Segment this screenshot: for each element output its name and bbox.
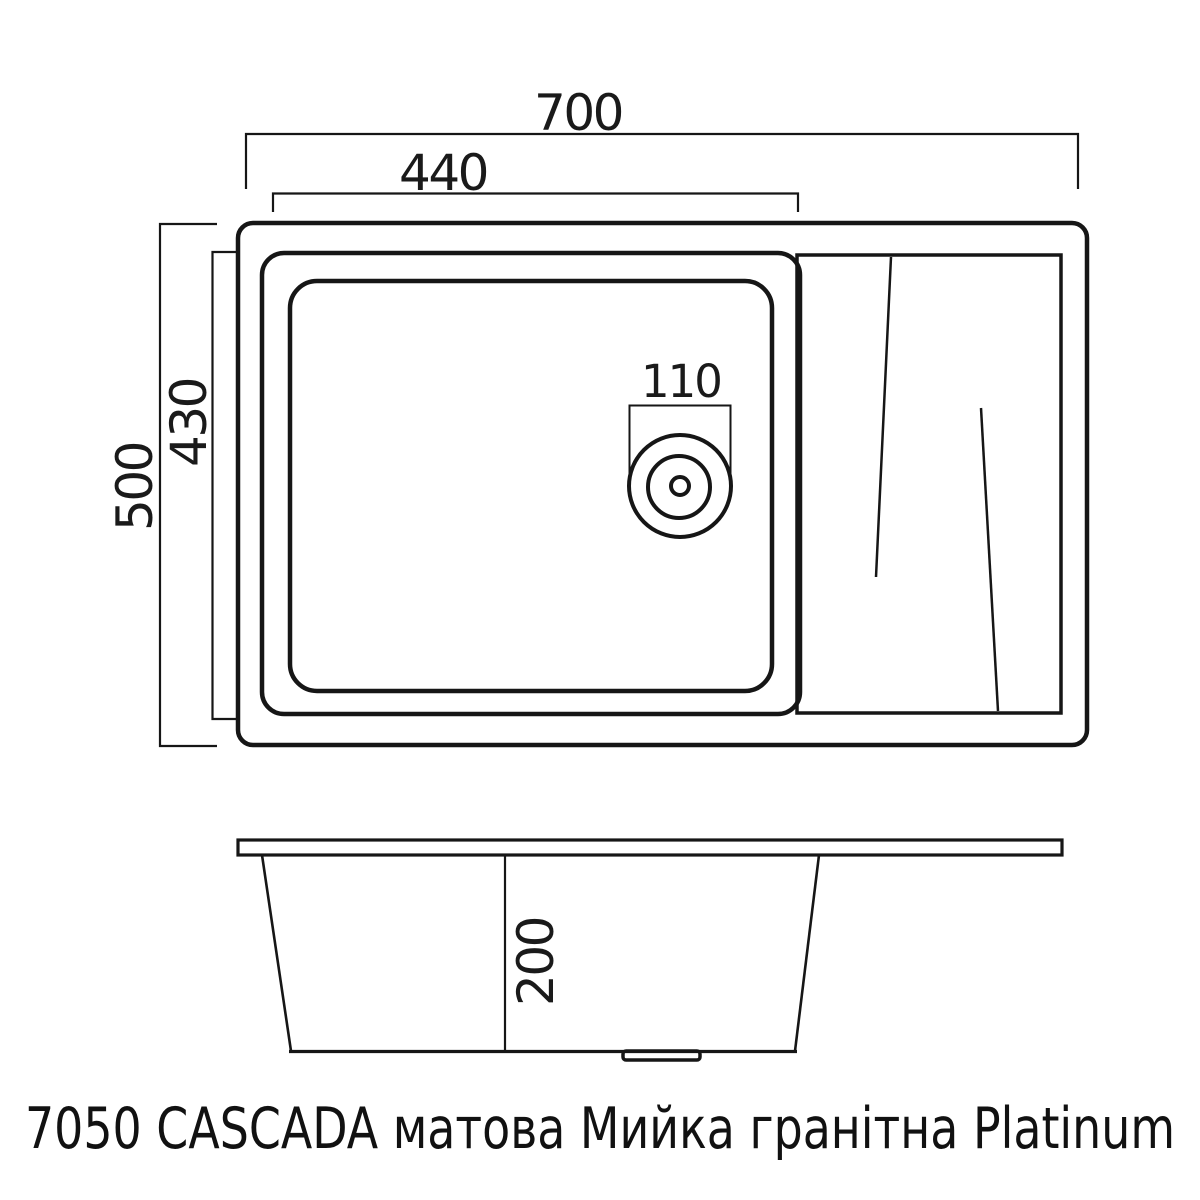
sink-outer-outline [238, 223, 1087, 745]
top-view: 700 440 500 430 110 [106, 84, 1087, 746]
bowl-cutout-width-label: 440 [399, 144, 487, 202]
overall-depth-label: 500 [106, 443, 164, 531]
drain-diameter-label: 110 [641, 355, 721, 408]
rim-profile-bar [238, 840, 1062, 855]
drain-stub [623, 1051, 700, 1060]
drainboard-groove-left [876, 257, 891, 577]
bowl-outline [290, 281, 772, 691]
bowl-depth-section-label: 200 [507, 918, 565, 1006]
sink-technical-drawing-page: 700 440 500 430 110 200 7050 CASCADA мат… [0, 0, 1200, 1200]
bowl-rim-outline [262, 253, 800, 714]
overall-width-dim-line [246, 134, 1078, 189]
section-view: 200 [238, 840, 1062, 1060]
overall-width-label: 700 [534, 84, 622, 142]
drain-ring [648, 456, 710, 518]
product-caption: 7050 CASCADA матова Мийка гранітна Plati… [25, 1096, 1175, 1162]
drainboard-groove-right [981, 408, 998, 711]
drain-outer-circle [629, 435, 731, 537]
drainboard-outline [797, 255, 1061, 713]
bowl-left-wall [262, 855, 291, 1051]
technical-drawing: 700 440 500 430 110 200 7050 CASCADA мат… [0, 0, 1200, 1200]
bowl-depth-dim-line [213, 252, 239, 719]
drain-hole [671, 477, 689, 495]
overall-depth-dim-line [160, 224, 217, 746]
bowl-cutout-depth-label: 430 [160, 379, 218, 467]
bowl-right-wall [795, 855, 819, 1051]
bowl-width-dim-line [273, 194, 798, 213]
drain-dim-bracket [630, 406, 731, 481]
